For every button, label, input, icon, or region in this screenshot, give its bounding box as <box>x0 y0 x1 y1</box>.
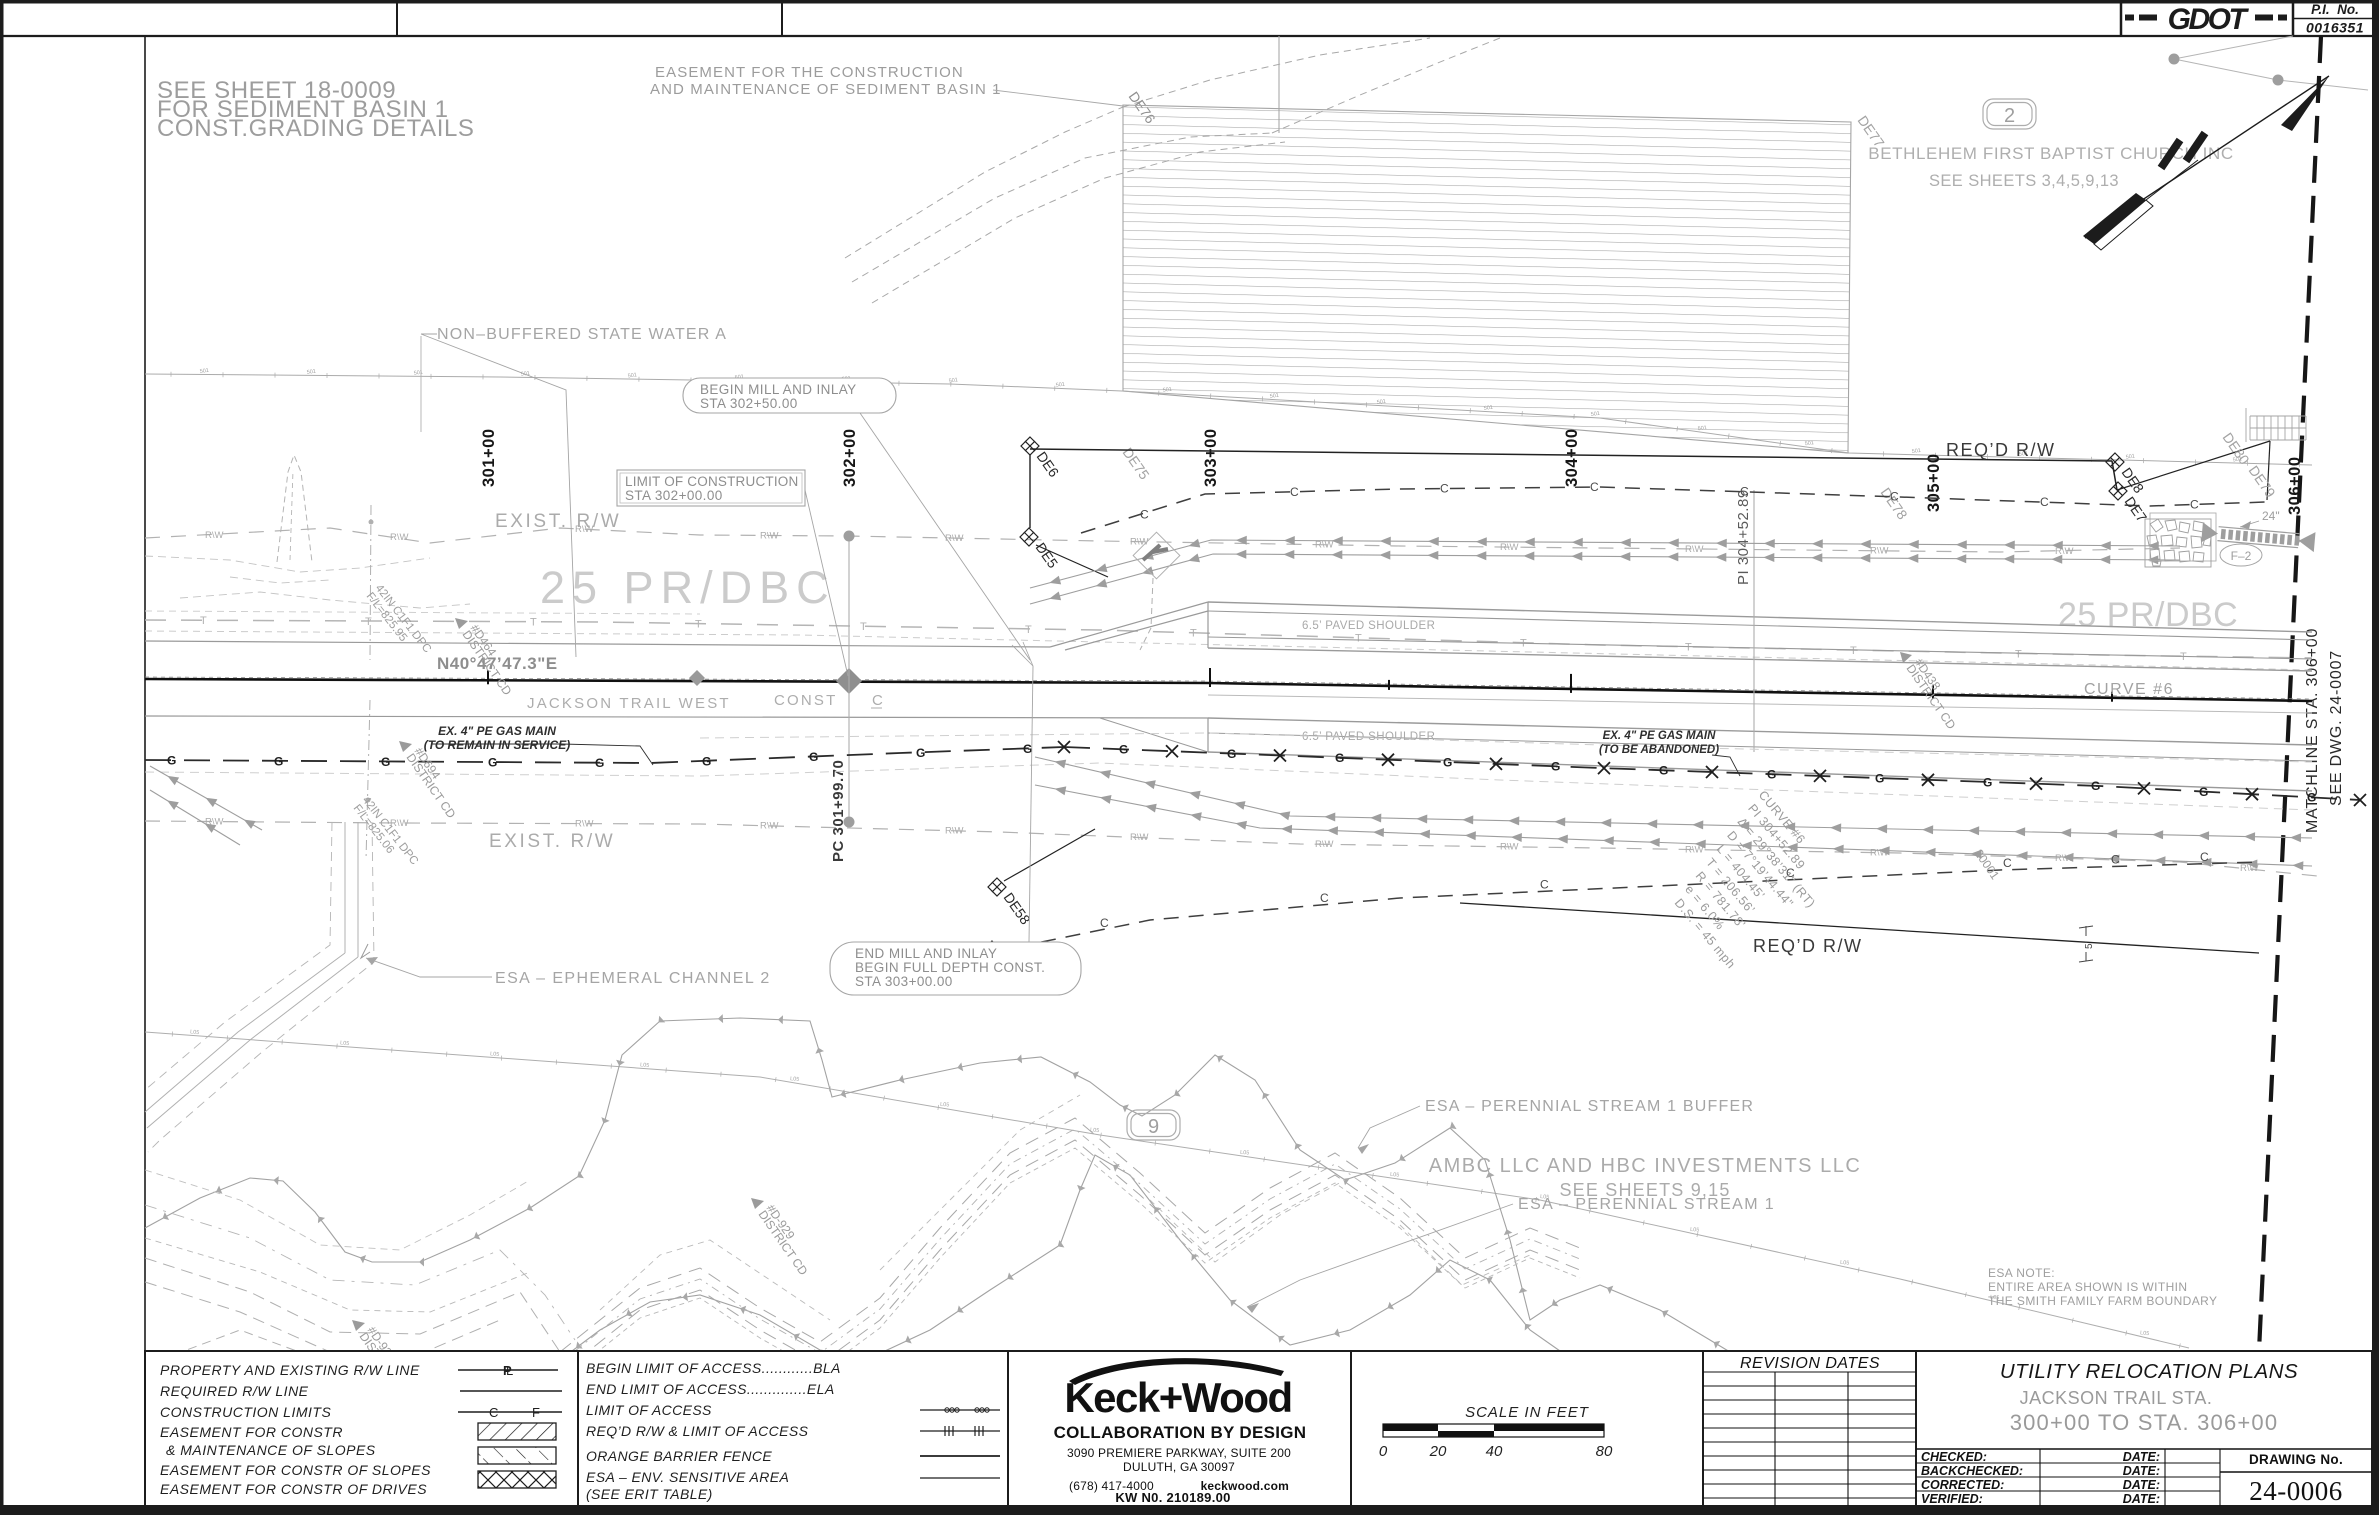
svg-text:G: G <box>809 750 818 764</box>
svg-text:C: C <box>1440 482 1449 496</box>
svg-text:Keck+Wood: Keck+Wood <box>1064 1374 1291 1421</box>
svg-text:REQ’D R/W & LIMIT OF ACCE: REQ’D R/W & LIMIT OF ACCESS <box>586 1423 809 1439</box>
svg-text:501: 501 <box>306 369 316 376</box>
svg-text:DATE:: DATE: <box>2123 1464 2160 1478</box>
svg-text:G: G <box>702 754 711 768</box>
svg-text:501: 501 <box>1269 393 1279 400</box>
svg-text:T: T <box>1850 645 1857 657</box>
svg-text:304+00: 304+00 <box>1563 428 1581 487</box>
svg-text:DATE:: DATE: <box>2123 1450 2160 1464</box>
svg-text:KW N0. 210189.00: KW N0. 210189.00 <box>1115 1490 1230 1505</box>
svg-text:VERIFIED:: VERIFIED: <box>1921 1492 1983 1506</box>
svg-text:BEGIN FULL DEPTH CONST.: BEGIN FULL DEPTH CONST. <box>855 960 1045 975</box>
svg-text:501: 501 <box>413 370 423 377</box>
svg-text:T: T <box>1025 624 1032 636</box>
svg-text:G: G <box>1767 768 1776 782</box>
svg-text:THE SMITH FAMILY FARM BOUNDARY: THE SMITH FAMILY FARM BOUNDARY <box>1988 1294 2217 1308</box>
svg-text:24": 24" <box>2262 509 2280 523</box>
svg-text:0: 0 <box>1379 1443 1388 1460</box>
svg-text:(TO REMAIN IN SERVICE): (TO REMAIN IN SERVICE) <box>424 738 570 752</box>
svg-text:R\W: R\W <box>1500 842 1519 853</box>
svg-text:PC 301+99.70: PC 301+99.70 <box>830 760 847 862</box>
svg-text:501: 501 <box>948 377 958 384</box>
svg-text:C: C <box>2190 498 2199 512</box>
svg-text:CORRECTED:: CORRECTED: <box>1921 1478 2004 1492</box>
svg-text:T: T <box>2015 648 2022 660</box>
svg-text:L: L <box>506 1363 513 1378</box>
svg-text:C: C <box>2040 495 2049 509</box>
svg-text:G: G <box>2307 791 2316 805</box>
svg-text:T: T <box>860 621 867 633</box>
svg-text:BEGIN LIMIT OF ACCESS......: BEGIN LIMIT OF ACCESS............BLA <box>586 1360 841 1376</box>
svg-text:501: 501 <box>1590 411 1600 418</box>
svg-text:302+00: 302+00 <box>841 428 859 487</box>
svg-text:R\W: R\W <box>760 530 779 541</box>
svg-text:PROPERTY AND EXISTING R/W: PROPERTY AND EXISTING R/W LINE <box>160 1362 420 1378</box>
svg-text:T: T <box>1685 642 1692 654</box>
svg-text:303+00: 303+00 <box>1202 428 1220 487</box>
svg-text:501: 501 <box>1162 387 1172 394</box>
svg-text:6.5’ PAVED SHOULDER: 6.5’ PAVED SHOULDER <box>1302 620 1435 632</box>
svg-text:AND MAINTENANCE OF SEDIMENT: AND MAINTENANCE OF SEDIMENT BASIN 1 <box>650 81 1002 98</box>
svg-text:(SEE ERIT TABLE): (SEE ERIT TABLE) <box>586 1486 713 1502</box>
svg-text:6.5’ PAVED SHOULDER: 6.5’ PAVED SHOULDER <box>1302 731 1435 743</box>
svg-text:CURVE #6: CURVE #6 <box>2084 681 2174 698</box>
svg-text:G: G <box>1119 743 1128 757</box>
svg-text:300+00 TO STA. 306+00: 300+00 TO STA. 306+00 <box>2010 1410 2279 1435</box>
svg-text:C: C <box>1140 507 1149 521</box>
svg-text:C: C <box>2111 853 2120 867</box>
svg-text:R\W: R\W <box>1315 839 1334 850</box>
svg-text:END MILL AND INLAY: END MILL AND INLAY <box>855 946 997 961</box>
svg-text:SCALE IN FEET: SCALE IN FEET <box>1465 1404 1590 1421</box>
svg-text:L05: L05 <box>1390 1172 1400 1179</box>
svg-text:L05: L05 <box>1240 1150 1250 1157</box>
svg-text:(TO BE ABANDONED): (TO BE ABANDONED) <box>1599 744 1719 756</box>
svg-text:REVISION DATES: REVISION DATES <box>1740 1355 1880 1372</box>
svg-text:G: G <box>1443 755 1452 769</box>
svg-text:PI 304+52.89: PI 304+52.89 <box>1735 489 1752 585</box>
svg-text:BEGIN MILL AND INLAY: BEGIN MILL AND INLAY <box>700 382 857 397</box>
svg-text:L05: L05 <box>640 1062 650 1069</box>
svg-text:T: T <box>1355 633 1362 645</box>
svg-text:R\W: R\W <box>205 530 224 541</box>
svg-text:L05: L05 <box>1840 1260 1850 1267</box>
svg-text:G: G <box>595 756 604 770</box>
svg-text:L05: L05 <box>940 1102 950 1109</box>
svg-text:SEE SHEETS 3,4,5,9,13: SEE SHEETS 3,4,5,9,13 <box>1929 172 2119 190</box>
svg-text:L05: L05 <box>1690 1227 1700 1234</box>
svg-text:R\W: R\W <box>1870 546 1889 557</box>
svg-text:501: 501 <box>1911 448 1921 455</box>
svg-text:G: G <box>2199 785 2208 799</box>
svg-text:501: 501 <box>1376 399 1386 406</box>
svg-text:G: G <box>167 754 176 768</box>
svg-text:C: C <box>1590 480 1599 494</box>
svg-text:C: C <box>2200 850 2209 864</box>
svg-text:R\W: R\W <box>390 532 409 543</box>
svg-text:L05: L05 <box>490 1051 500 1058</box>
svg-text:R\W: R\W <box>575 819 594 830</box>
svg-text:R\W: R\W <box>1130 537 1149 548</box>
svg-text:LIMIT OF CONSTRUCTION: LIMIT OF CONSTRUCTION <box>625 474 798 489</box>
svg-text:305+00: 305+00 <box>1925 453 1943 512</box>
svg-text:UTILITY RELOCATION PLANS: UTILITY RELOCATION PLANS <box>2000 1360 2298 1383</box>
svg-text:EASEMENT FOR CONSTR OF SLO: EASEMENT FOR CONSTR OF SLOPES <box>160 1462 431 1478</box>
svg-text:501: 501 <box>1055 382 1065 389</box>
svg-text:DRAWING No.: DRAWING No. <box>2249 1452 2343 1467</box>
svg-text:0016351: 0016351 <box>2306 20 2364 36</box>
svg-text:T: T <box>695 619 702 631</box>
svg-text:501: 501 <box>1804 440 1814 447</box>
svg-text:ORANGE BARRIER FENCE: ORANGE BARRIER FENCE <box>586 1448 772 1464</box>
svg-text:REQUIRED R/W LINE: REQUIRED R/W LINE <box>160 1383 309 1399</box>
svg-text:80: 80 <box>1596 1443 1613 1460</box>
svg-text:C: C <box>489 1405 498 1420</box>
svg-text:25 PR/DBC: 25 PR/DBC <box>540 562 836 613</box>
svg-text:F–2: F–2 <box>2231 549 2252 563</box>
svg-text:L05: L05 <box>340 1040 350 1047</box>
svg-text:C: C <box>872 692 883 709</box>
svg-text:L05: L05 <box>1090 1127 1100 1134</box>
svg-text:DATE:: DATE: <box>2123 1492 2160 1506</box>
svg-text:G: G <box>1551 760 1560 774</box>
svg-text:501: 501 <box>1483 405 1493 412</box>
svg-text:NON–BUFFERED STATE WATER A: NON–BUFFERED STATE WATER A <box>437 326 727 343</box>
svg-text:EASEMENT FOR CONSTR: EASEMENT FOR CONSTR <box>160 1424 343 1440</box>
svg-text:ENTIRE AREA SHOWN IS WITHIN: ENTIRE AREA SHOWN IS WITHIN <box>1988 1280 2187 1294</box>
svg-text:R\W: R\W <box>760 821 779 832</box>
svg-text:L05: L05 <box>2140 1330 2150 1337</box>
svg-text:2: 2 <box>2004 105 2015 127</box>
svg-text:STA 303+00.00: STA 303+00.00 <box>855 974 953 989</box>
svg-text:L05: L05 <box>790 1076 800 1083</box>
svg-text:BACKCHECKED:: BACKCHECKED: <box>1921 1464 2023 1478</box>
svg-text:REQ’D R/W: REQ’D R/W <box>1753 936 1863 956</box>
svg-text:JACKSON TRAIL STA.: JACKSON TRAIL STA. <box>2020 1388 2213 1408</box>
svg-text:501: 501 <box>2125 453 2135 460</box>
svg-text:C: C <box>1890 490 1899 504</box>
svg-text:301+00: 301+00 <box>480 428 498 487</box>
svg-text:CONST: CONST <box>774 692 838 709</box>
svg-text:CHECKED:: CHECKED: <box>1921 1450 1987 1464</box>
svg-text:C: C <box>1100 916 1109 930</box>
svg-text:C: C <box>1740 485 1749 499</box>
svg-text:501: 501 <box>199 368 209 375</box>
svg-text:T: T <box>530 617 537 629</box>
svg-text:STA 302+50.00: STA 302+50.00 <box>700 396 798 411</box>
svg-text:G: G <box>1983 775 1992 789</box>
svg-text:R\W: R\W <box>1130 832 1149 843</box>
svg-text:R\W: R\W <box>1685 544 1704 555</box>
svg-text:T: T <box>2180 651 2187 663</box>
svg-text:G: G <box>381 755 390 769</box>
svg-text:T: T <box>1190 628 1197 640</box>
svg-text:C: C <box>1290 485 1299 499</box>
svg-text:CONSTRUCTION LIMITS: CONSTRUCTION LIMITS <box>160 1404 331 1420</box>
svg-text:EASEMENT FOR THE CONSTRUCTIO: EASEMENT FOR THE CONSTRUCTION <box>655 64 964 81</box>
svg-text:LIMIT OF ACCESS: LIMIT OF ACCESS <box>586 1402 712 1418</box>
svg-text:DATE:: DATE: <box>2123 1478 2160 1492</box>
svg-text:L05: L05 <box>190 1029 200 1036</box>
svg-text:25 PR/DBC: 25 PR/DBC <box>2058 596 2238 634</box>
svg-text:SEE DWG. 24-0007: SEE DWG. 24-0007 <box>2328 650 2345 806</box>
svg-text:CONST.GRADING DETAILS: CONST.GRADING DETAILS <box>157 115 475 142</box>
svg-text:306+00: 306+00 <box>2286 456 2304 515</box>
svg-text:9: 9 <box>1148 1116 1159 1138</box>
svg-text:G: G <box>1023 742 1032 756</box>
svg-text:24-0006: 24-0006 <box>2249 1476 2343 1506</box>
svg-text:501: 501 <box>1697 425 1707 432</box>
svg-text:G: G <box>488 756 497 770</box>
svg-text:F: F <box>532 1405 540 1420</box>
svg-text:EXIST. R/W: EXIST. R/W <box>489 831 615 852</box>
svg-text:G: G <box>274 754 283 768</box>
svg-text:G: G <box>1227 747 1236 761</box>
svg-text:ESA – ENV. SENSITIVE AREA: ESA – ENV. SENSITIVE AREA <box>586 1469 789 1485</box>
svg-text:20: 20 <box>1429 1443 1447 1460</box>
svg-text:G: G <box>1335 751 1344 765</box>
svg-text:DULUTH, GA 30097: DULUTH, GA 30097 <box>1123 1460 1235 1474</box>
svg-text:REQ’D R/W: REQ’D R/W <box>1946 440 2056 460</box>
svg-text:C: C <box>1320 891 1329 905</box>
svg-text:P.I. No.: P.I. No. <box>2311 2 2359 17</box>
svg-text:C: C <box>2003 856 2012 870</box>
svg-text:EXIST. R/W: EXIST. R/W <box>495 511 621 532</box>
svg-text:EX. 4" PE GAS MAIN: EX. 4" PE GAS MAIN <box>1603 730 1717 742</box>
svg-text:AMBC LLC AND HBC INVESTMENTS L: AMBC LLC AND HBC INVESTMENTS LLC <box>1429 1155 1862 1177</box>
svg-text:R\W: R\W <box>945 533 964 544</box>
svg-text:R\W: R\W <box>1500 542 1519 553</box>
svg-text:EASEMENT FOR CONSTR OF DRI: EASEMENT FOR CONSTR OF DRIVES <box>160 1481 427 1497</box>
svg-text:40: 40 <box>1486 1443 1503 1460</box>
svg-text:T: T <box>365 616 372 628</box>
svg-text:C: C <box>1540 878 1549 892</box>
svg-text:5’: 5’ <box>2084 941 2095 949</box>
svg-text:R\W: R\W <box>945 826 964 837</box>
svg-text:COLLABORATION BY DESIGN: COLLABORATION BY DESIGN <box>1054 1423 1307 1442</box>
svg-text:GDOT: GDOT <box>2168 3 2250 36</box>
svg-text:ESA – PERENNIAL STREAM 1 BUFFE: ESA – PERENNIAL STREAM 1 BUFFER <box>1425 1098 1754 1115</box>
svg-text:& MAINTENANCE OF SLOPES: & MAINTENANCE OF SLOPES <box>166 1442 376 1458</box>
svg-text:END LIMIT OF ACCESS........: END LIMIT OF ACCESS..............ELA <box>586 1381 835 1397</box>
svg-text:G: G <box>1659 764 1668 778</box>
svg-text:G: G <box>1875 771 1884 785</box>
svg-text:3090 PREMIERE PARKWAY, SUITE 2: 3090 PREMIERE PARKWAY, SUITE 200 <box>1067 1446 1291 1460</box>
svg-text:501: 501 <box>627 372 637 379</box>
svg-text:ESA NOTE:: ESA NOTE: <box>1988 1266 2055 1280</box>
svg-text:G: G <box>2091 779 2100 793</box>
svg-text:SEE SHEETS 9,15: SEE SHEETS 9,15 <box>1559 1180 1730 1200</box>
svg-text:STA 302+00.00: STA 302+00.00 <box>625 488 723 503</box>
svg-text:ESA – EPHEMERAL CHANNEL 2: ESA – EPHEMERAL CHANNEL 2 <box>495 970 771 987</box>
svg-text:JACKSON TRAIL WEST: JACKSON TRAIL WEST <box>527 695 731 712</box>
svg-text:EX. 4" PE GAS MAIN: EX. 4" PE GAS MAIN <box>438 724 556 738</box>
svg-text:T: T <box>200 615 207 627</box>
svg-text:G: G <box>916 746 925 760</box>
